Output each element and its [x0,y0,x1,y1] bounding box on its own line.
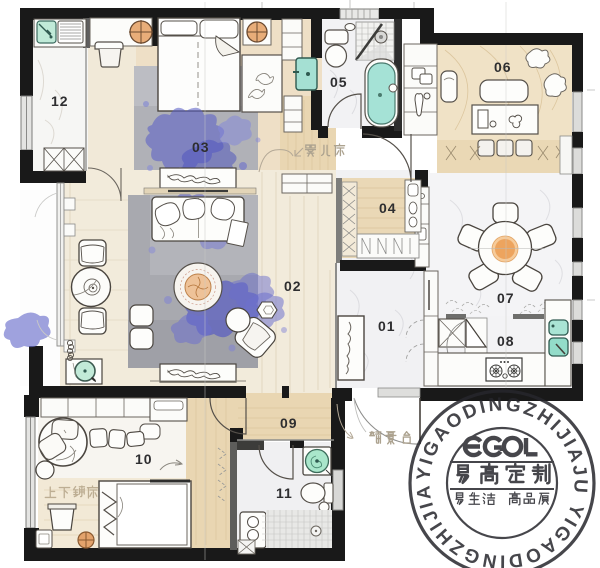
svg-text:01: 01 [378,318,396,334]
svg-text:11: 11 [276,485,293,501]
svg-text:09: 09 [280,415,298,431]
svg-text:03: 03 [192,139,210,155]
svg-text:07: 07 [497,290,515,306]
svg-text:08: 08 [497,333,515,349]
svg-text:06: 06 [494,59,512,75]
svg-text:04: 04 [379,200,397,216]
svg-text:12: 12 [51,93,69,109]
svg-text:10: 10 [135,451,153,467]
svg-text:05: 05 [330,74,348,90]
svg-text:02: 02 [284,278,302,294]
